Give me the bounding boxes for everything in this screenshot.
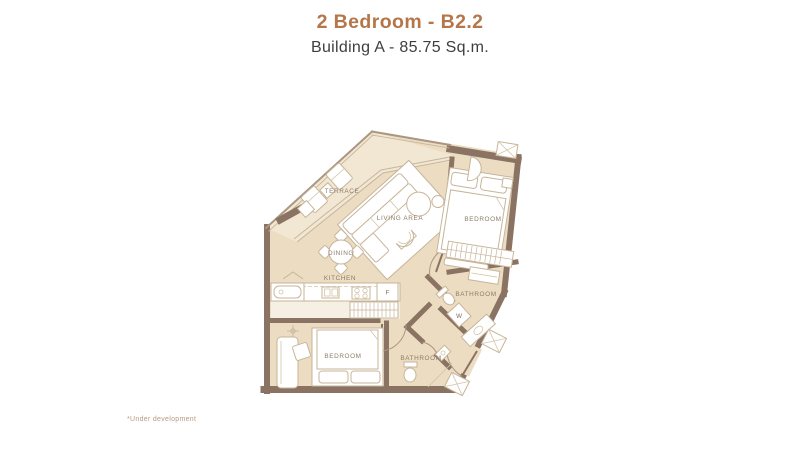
room-label-bedroom2: BEDROOM bbox=[324, 353, 361, 360]
room-label-terrace: TERRACE bbox=[325, 188, 360, 195]
room-label-bedroom1: BEDROOM bbox=[464, 216, 501, 223]
room-label-bathroom1: BATHROOM bbox=[455, 291, 496, 298]
washer-label: W bbox=[456, 313, 462, 320]
chaise-icon bbox=[277, 337, 298, 388]
closet-icon bbox=[350, 302, 398, 318]
floorplan-svg: TERRACE LIVING AREA DINING KITCHEN BEDRO… bbox=[0, 0, 800, 450]
room-label-kitchen: KITCHEN bbox=[324, 275, 356, 282]
laundry-tub-icon bbox=[271, 283, 304, 301]
fridge-label: F bbox=[386, 290, 390, 297]
stove-icon bbox=[352, 287, 370, 299]
ac-unit-icon bbox=[496, 142, 518, 159]
room-label-living: LIVING AREA bbox=[377, 215, 424, 222]
footnote: *Under development bbox=[127, 416, 196, 423]
page: 2 Bedroom - B2.2 Building A - 85.75 Sq.m… bbox=[0, 0, 800, 450]
sink-icon bbox=[322, 287, 339, 298]
room-label-bathroom2: BATHROOM bbox=[400, 355, 441, 362]
nightstand-icon bbox=[502, 178, 513, 188]
kitchen-counter bbox=[271, 283, 400, 301]
room-label-dining: DINING bbox=[328, 250, 354, 257]
toilet-icon bbox=[404, 362, 417, 382]
